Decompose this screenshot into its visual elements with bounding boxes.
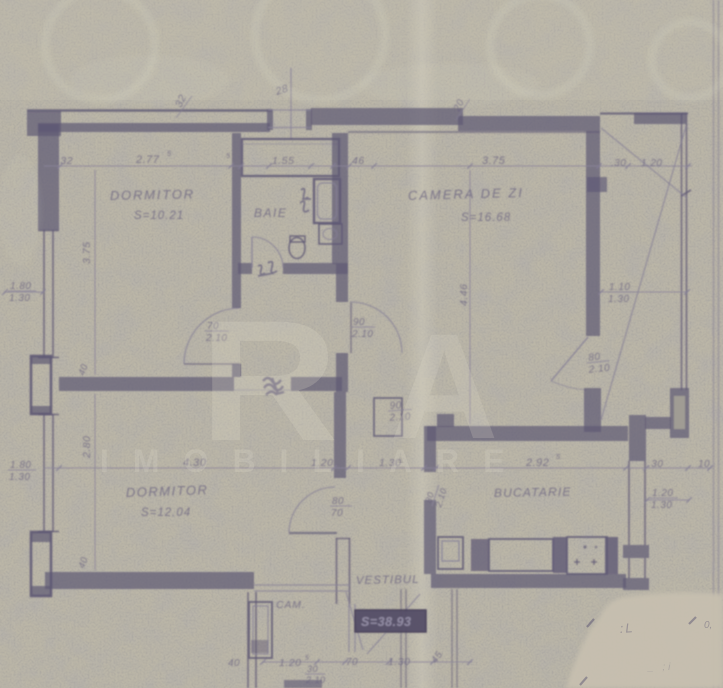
svg-text:2.92: 2.92 (525, 457, 549, 469)
svg-text:40: 40 (228, 658, 240, 669)
svg-text:10: 10 (698, 459, 710, 470)
svg-text:70: 70 (331, 508, 343, 519)
svg-text:5: 5 (226, 151, 231, 160)
svg-text:1.10: 1.10 (609, 282, 630, 293)
svg-text:5: 5 (167, 149, 172, 158)
svg-text:3.75: 3.75 (482, 155, 506, 167)
svg-text:IMOBILIARE: IMOBILIARE (100, 443, 528, 479)
svg-text:2.77: 2.77 (135, 154, 160, 166)
svg-text:1.80: 1.80 (10, 281, 31, 292)
svg-text:1.30: 1.30 (651, 500, 672, 511)
svg-text:2.10: 2.10 (351, 329, 373, 340)
svg-text:VESTIBUL: VESTIBUL (356, 574, 420, 587)
svg-text:1.30: 1.30 (9, 293, 30, 304)
svg-text:BUCATARIE: BUCATARIE (494, 485, 572, 500)
svg-text:S=10.21: S=10.21 (134, 210, 184, 222)
svg-text:S=38.93: S=38.93 (361, 615, 411, 629)
svg-text:.30: .30 (648, 459, 663, 470)
svg-text:1.20: 1.20 (279, 657, 301, 669)
svg-text:1.20: 1.20 (641, 158, 662, 169)
svg-text:BAIE: BAIE (254, 206, 287, 220)
svg-text:1.30: 1.30 (388, 656, 410, 668)
svg-text:DORMITOR: DORMITOR (126, 482, 209, 500)
svg-text:2.80: 2.80 (81, 436, 93, 459)
svg-text:_ ;i: _ ;i (647, 662, 673, 673)
svg-text:CAMERA DE ZI: CAMERA DE ZI (408, 185, 524, 203)
svg-text:80: 80 (332, 496, 344, 507)
svg-text:1.20: 1.20 (652, 488, 673, 499)
svg-text:90: 90 (353, 317, 365, 328)
svg-text:S=16.68: S=16.68 (461, 212, 511, 224)
svg-text:46: 46 (352, 155, 365, 167)
svg-text:2.10: 2.10 (305, 675, 326, 685)
svg-text:2.10: 2.10 (587, 363, 610, 376)
svg-text:DORMITOR: DORMITOR (110, 187, 195, 203)
svg-text:1.30: 1.30 (9, 472, 30, 483)
svg-text:CAM.: CAM. (276, 599, 305, 611)
svg-text:0,: 0, (704, 620, 712, 631)
svg-text:30: 30 (307, 664, 318, 674)
svg-text:S=12.04: S=12.04 (141, 507, 191, 519)
svg-text:.32: .32 (57, 155, 73, 167)
svg-text:.30: .30 (611, 158, 626, 169)
svg-text:5: 5 (305, 655, 309, 662)
svg-text:70: 70 (346, 657, 358, 668)
svg-text:3.75: 3.75 (81, 242, 93, 264)
svg-text:1.80: 1.80 (10, 460, 31, 471)
svg-text:1.55: 1.55 (272, 155, 294, 167)
svg-text:1.30: 1.30 (608, 294, 629, 305)
svg-text::L: :L (619, 620, 635, 636)
svg-text:5: 5 (556, 452, 561, 461)
